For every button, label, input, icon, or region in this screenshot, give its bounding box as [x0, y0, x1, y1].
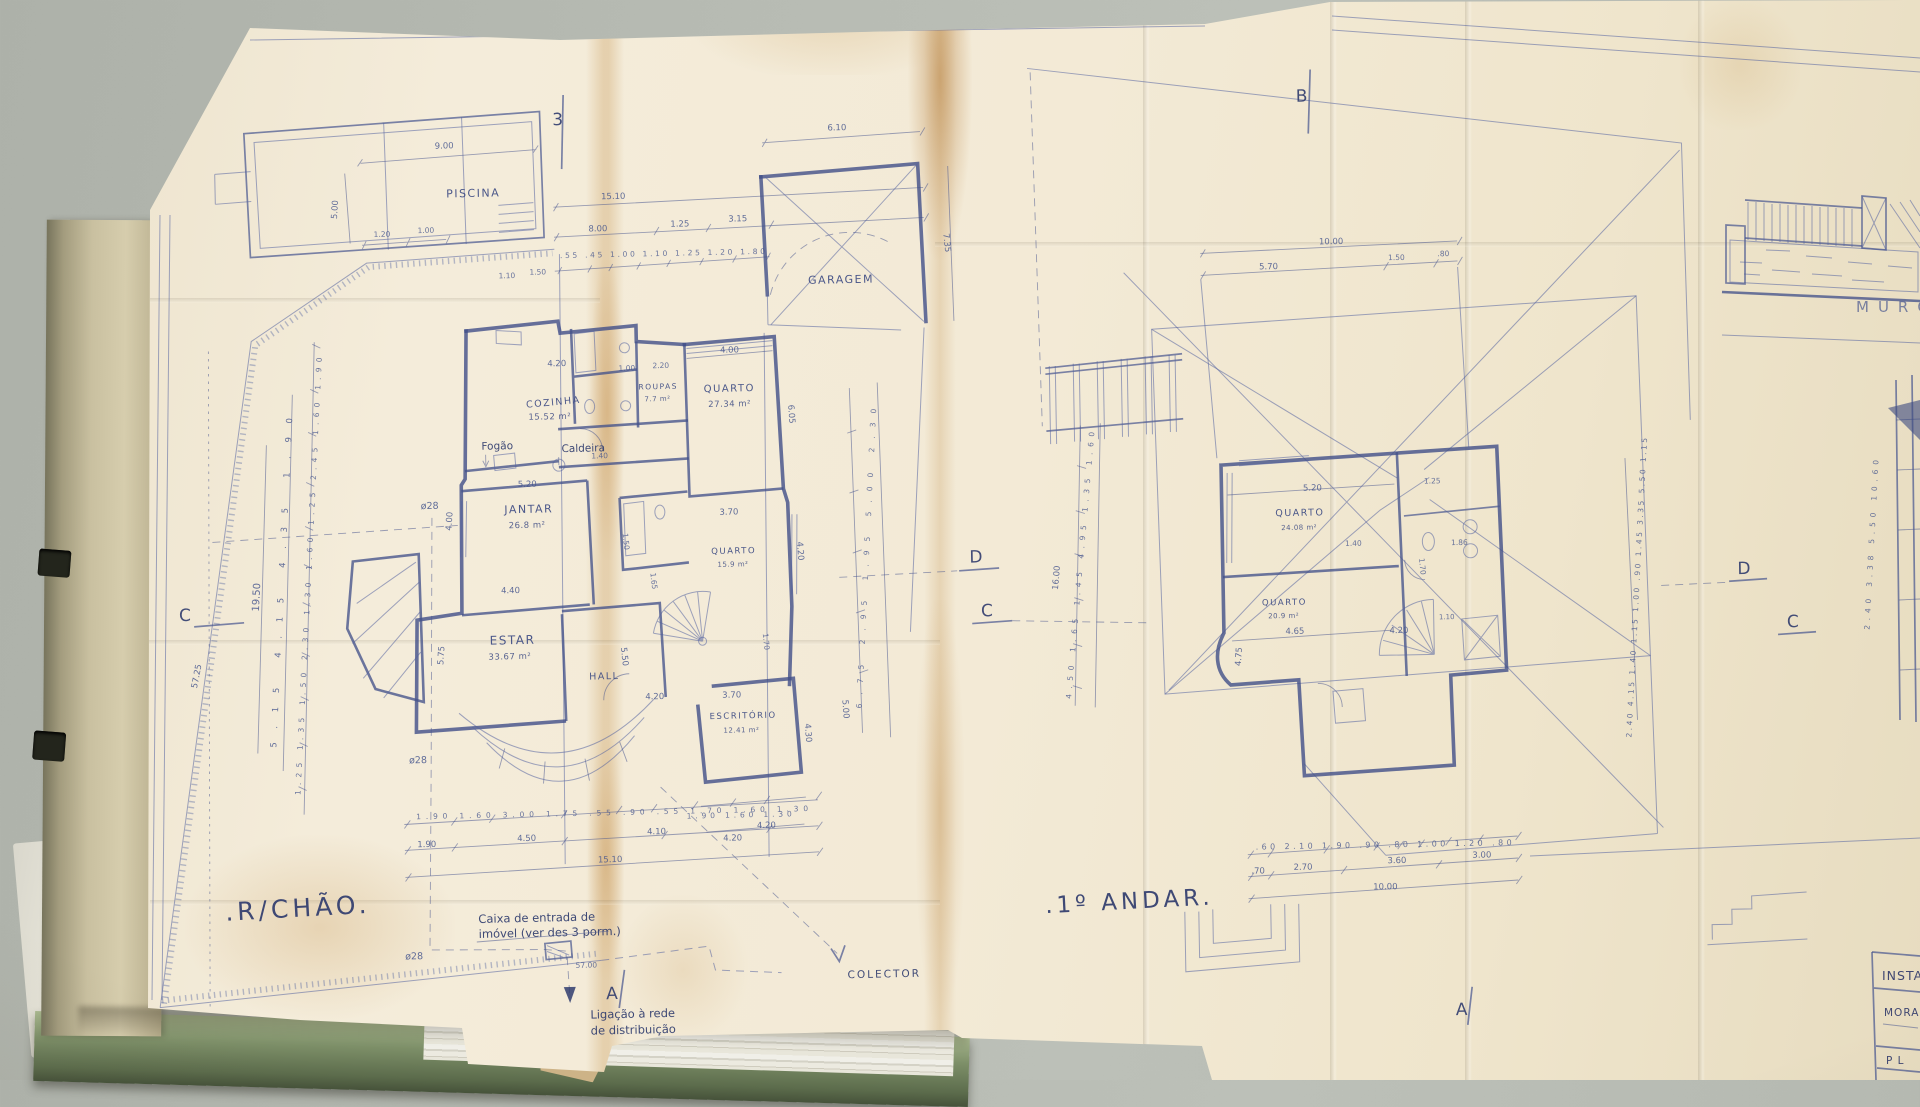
section-b: B — [1296, 87, 1308, 107]
room-area-estar: 33.67 m² — [488, 652, 531, 663]
dim: 4.00 — [444, 512, 455, 532]
dim-chain-bottom: 1.90 1.60 3.00 1.75 .55 .90 .55 1.70 1.6… — [404, 792, 824, 882]
adjacent-sheet-fragment: 2.40 3.38 5.50 10.60 — [1863, 375, 1920, 722]
terrace-steps-drawing — [1185, 892, 1808, 972]
dim-ff-top-total: 10.00 — [1319, 237, 1344, 247]
section-d-mid: D — [969, 547, 983, 567]
room-area-quarto2: 15.9 m² — [717, 560, 748, 569]
binder-hole — [37, 548, 71, 577]
dim-chain-left: 1.25 1.35 1.50 2.30 1.30 1.60 1.25 2.45 … — [183, 342, 334, 817]
dim-chain-top: 15.10 8.00 1.25 3.15 1.10 1.50 .55 .45 1… — [497, 183, 930, 280]
note-ligacao-1: Ligação à rede — [590, 1006, 675, 1022]
dim: 4.20 — [794, 541, 805, 561]
pergola-slats — [1045, 354, 1184, 444]
dim: 2.70 — [1293, 863, 1312, 873]
dim-boundary: 57.25 — [190, 663, 204, 689]
dim-chain-top-ff: 10.00 5.70 1.50 .80 — [1200, 235, 1463, 280]
dim-ff-bottom-chain: .60 2.10 1.90 .90 .80 1.00 1.20 .80 — [1256, 838, 1512, 851]
dim: 4.30 — [802, 723, 813, 743]
wall-elevation: MURO — [1722, 196, 1920, 343]
section-c-mid: C — [981, 601, 993, 621]
dim: 4.20 — [1389, 626, 1408, 636]
first-floor-plan: 10.00 5.70 1.50 .80 — [1027, 55, 1823, 1032]
dim-left-groups: 5.15 4.15 4.35 1.90 — [269, 418, 295, 748]
room-label-escritorio: ESCRITÓRIO — [709, 709, 776, 722]
dim-ff-top-c: .80 — [1437, 249, 1449, 258]
room-labels-ff: QUARTO 24.08 m² QUARTO 20.9 m² — [1260, 507, 1326, 620]
dim: 4.20 — [547, 359, 566, 369]
section-a-ff: A — [1456, 1000, 1468, 1020]
dim: .70 — [1251, 866, 1265, 876]
dim-top-c: 3.15 — [728, 214, 747, 224]
dim: 3.70 — [719, 507, 738, 517]
room-label-cozinha: COZINHA — [526, 395, 581, 411]
section-d-right: D — [1737, 559, 1750, 579]
dim: 1.40 — [591, 451, 608, 460]
pipe-label: ø28 — [409, 755, 427, 766]
label-fogao: Fogão — [481, 440, 513, 453]
dim-top-chain: .55 .45 1.00 1.10 1.25 1.20 1.80 — [560, 247, 765, 260]
room-label-quarto2: QUARTO — [711, 546, 756, 557]
room-label-hall: HALL — [589, 671, 619, 683]
dim-right-chain: 6.75 2.95 1.95 5.00 2.30 — [855, 408, 879, 708]
plan-title-ff: .1º ANDAR. — [1045, 884, 1215, 919]
garage-plan: 6.10 7.35 GARAGEM — [760, 121, 954, 333]
dim: 4.40 — [501, 586, 520, 596]
section-3: 3 — [552, 110, 563, 130]
dim-top-e: 1.50 — [529, 267, 546, 276]
dim: 4.20 — [723, 833, 742, 843]
dim: 5.20 — [518, 480, 537, 490]
dim-pool-length: 9.00 — [435, 141, 454, 151]
dim-chain-bottom-ff: .60 2.10 1.90 .90 .80 1.00 1.20 .80 .70 … — [1248, 832, 1523, 903]
dim-left-total: 19.50 — [251, 583, 263, 612]
dim-ff-left-total: 16.00 — [1051, 565, 1063, 590]
note-caixa-1: Caixa de entrada de — [478, 910, 595, 926]
section-c-left: C — [179, 606, 191, 626]
arrow-up — [564, 987, 576, 1003]
room-area-escritorio: 12.41 m² — [723, 726, 759, 735]
dim-top-total: 15.10 — [601, 192, 626, 203]
site-boundary-ff — [1027, 57, 1691, 461]
pool-plan: 9.00 5.00 1.20 1.00 PISCINA — [214, 111, 545, 258]
dim: 4.20 — [645, 692, 664, 702]
dim-bottom-total: 15.10 — [598, 855, 623, 866]
dim: 1.25 — [1424, 476, 1441, 485]
label-muro: MURO — [1856, 298, 1920, 316]
room-label-ff-quarto2: QUARTO — [1262, 598, 1307, 609]
dim: 4.10 — [647, 827, 666, 837]
dim-garage-width: 6.10 — [827, 123, 846, 133]
file-cover-strip — [41, 220, 167, 1037]
dim: 1.00 — [618, 364, 635, 373]
room-label-roupas: ROUPAS — [638, 382, 678, 392]
dim-ff-bottom-total: 10.00 — [1373, 882, 1398, 892]
pipe-label: ø28 — [421, 501, 439, 512]
dim-pipe-drop: 57.00 — [576, 960, 598, 969]
room-label-ff-quarto1: QUARTO — [1275, 507, 1324, 519]
dim: 1.70 — [761, 633, 772, 651]
room-label-jantar: JANTAR — [503, 502, 553, 516]
dim: 5.75 — [436, 646, 447, 666]
dim-chain-right-ground: 6.75 2.95 1.95 5.00 2.30 — [846, 382, 890, 738]
dim: 1.50 — [621, 533, 632, 551]
dim: 5.00 — [839, 699, 850, 719]
dim-left-chain: 1.25 1.35 1.50 2.30 1.30 1.60 1.25 2.45 … — [293, 357, 323, 795]
dim: 5.20 — [1303, 483, 1322, 493]
dim: 5.50 — [618, 647, 630, 667]
dim-chain-right-ff: 2.40 4.15 1.40 1.15 1.00 .90 1.45 3.35 5… — [1619, 437, 1654, 738]
note-colector: COLECTOR — [847, 968, 921, 982]
dim-pool-width: 5.00 — [330, 200, 341, 220]
dim: 1.10 — [1439, 613, 1455, 621]
dim: 4.75 — [1234, 647, 1245, 667]
pipe-label: ø28 — [405, 951, 423, 962]
dim: 1.40 — [1345, 539, 1362, 548]
dim: 1.90 — [417, 840, 436, 850]
note-ligacao-2: de distribuição — [591, 1022, 676, 1038]
room-label-garagem: GARAGEM — [808, 273, 874, 287]
titleblock-row2: MORAD — [1884, 1007, 1920, 1019]
note-caixa-2: imóvel (ver des 3 porm.) — [479, 924, 621, 941]
dim-chain-left-ff: 4.50 1.65 1.45 4.95 1.35 1.60 16.00 — [1048, 423, 1105, 708]
room-label-quarto1: QUARTO — [704, 383, 755, 395]
dim: 6.05 — [785, 404, 796, 424]
blueprint-drawing: 9.00 5.00 1.20 1.00 PISCINA 15.10 8.00 1… — [0, 0, 1920, 1080]
site-boundary — [144, 242, 938, 1008]
dim: 1.86 — [1451, 538, 1468, 547]
section-a-ground: A — [606, 984, 618, 1004]
dim-ff-left-chain: 4.50 1.65 1.45 4.95 1.35 1.60 — [1064, 431, 1096, 699]
dim: 1.70 — [1417, 558, 1428, 576]
room-label-estar: ESTAR — [490, 633, 536, 648]
dim-ff-top-b: 1.50 — [1388, 253, 1405, 262]
dim: 3.00 — [1472, 850, 1491, 860]
dim-edge-chain: 2.40 3.38 5.50 10.60 — [1863, 460, 1881, 630]
dim-top-b: 1.25 — [670, 219, 689, 229]
dim-top-a: 8.00 — [588, 224, 607, 234]
room-area-ff-quarto1: 24.08 m² — [1281, 523, 1317, 532]
dim-garage-depth: 7.35 — [940, 233, 952, 253]
roof-plan — [1122, 150, 1692, 860]
dim: 3.60 — [1387, 856, 1406, 866]
title-block: INSTAL MORAD P L — [1530, 838, 1920, 1080]
binder-hole — [32, 730, 66, 761]
room-area-roupas: 7.7 m² — [644, 395, 670, 404]
section-c-right: C — [1787, 612, 1799, 632]
blueprint-sheet: 9.00 5.00 1.20 1.00 PISCINA 15.10 8.00 1… — [0, 0, 1920, 1080]
dim-pool-a: 1.20 — [374, 230, 391, 239]
dim-ff-top-a: 5.70 — [1259, 262, 1278, 272]
sheet-border-lines — [152, 16, 1920, 1000]
room-area-quarto1: 27.34 m² — [708, 399, 751, 410]
dim: 4.50 — [517, 834, 536, 844]
dim-pool-b: 1.00 — [417, 226, 434, 235]
dim: 4.20 — [757, 821, 776, 831]
titleblock-row1: INSTAL — [1882, 968, 1920, 983]
dim: 2.20 — [652, 361, 669, 370]
room-label-piscina: PISCINA — [446, 186, 500, 200]
dim: 3.70 — [722, 690, 741, 700]
dim: 1.65 — [648, 572, 659, 590]
room-area-jantar: 26.8 m² — [509, 520, 546, 531]
dim-top-d: 1.10 — [498, 271, 515, 280]
upper-floor-walls — [1214, 446, 1509, 777]
utility-annotations: ø28 ø28 ø28 Caixa de entrada de imóvel (… — [396, 491, 923, 1042]
dim-ff-right-chain: 2.40 4.15 1.40 1.15 1.00 .90 1.45 3.35 5… — [1624, 437, 1649, 737]
room-area-cozinha: 15.52 m² — [528, 412, 571, 423]
room-area-ff-quarto2: 20.9 m² — [1268, 612, 1299, 621]
titleblock-row3: P L — [1886, 1055, 1905, 1067]
dim: 4.65 — [1285, 627, 1304, 637]
plan-title-ground: .R/CHÃO. — [224, 889, 371, 927]
section-markers-ground: 3 C D C A .R/CHÃO. — [168, 83, 1158, 1017]
